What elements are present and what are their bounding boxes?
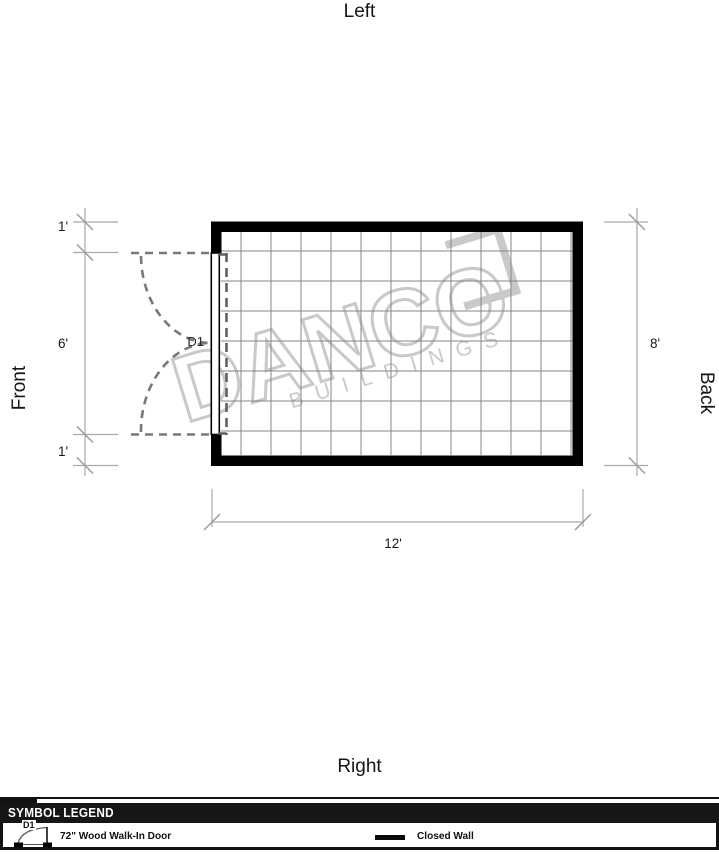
orientation-label-back-side: Back: [695, 367, 717, 419]
legend-title: SYMBOL LEGEND: [8, 806, 114, 820]
door-d1-tag: D1: [182, 334, 204, 349]
walk-in-door-icon-label: D1: [22, 820, 36, 830]
dimension-value-bottom: 12': [373, 536, 413, 551]
walk-in-door-legend-label: 72" Wood Walk-In Door: [60, 830, 171, 842]
legend-items-row: D1 72" Wood Walk-In Door Closed Wall: [0, 823, 719, 850]
closed-wall-legend-label: Closed Wall: [417, 830, 474, 842]
dimension-left: [73, 208, 118, 476]
walk-in-door-icon: D1: [13, 822, 55, 848]
dimension-value-left-top: 1': [48, 219, 78, 234]
floor-plan-drawing: [0, 0, 719, 856]
closed-wall-icon: [375, 835, 405, 840]
dimension-value-right: 8': [640, 336, 670, 351]
orientation-label-right-side: Right: [0, 756, 719, 778]
floor-grid: [221, 232, 573, 455]
dimension-value-left-middle: 6': [48, 336, 78, 351]
closed-walls: [211, 222, 583, 467]
legend-top-rule: [0, 797, 719, 799]
legend-header-bar: SYMBOL LEGEND: [0, 803, 719, 823]
door-d1-symbol: [131, 253, 227, 435]
orientation-label-left-side: Left: [0, 1, 719, 23]
symbol-legend: SYMBOL LEGEND D1 72" Wood Walk-In Door C…: [0, 789, 719, 856]
floor-plan-page: DANCO BUILDINGS: [0, 0, 719, 856]
dimension-value-left-bottom: 1': [48, 444, 78, 459]
dimension-bottom: [204, 489, 591, 530]
orientation-label-front-side: Front: [9, 360, 31, 416]
